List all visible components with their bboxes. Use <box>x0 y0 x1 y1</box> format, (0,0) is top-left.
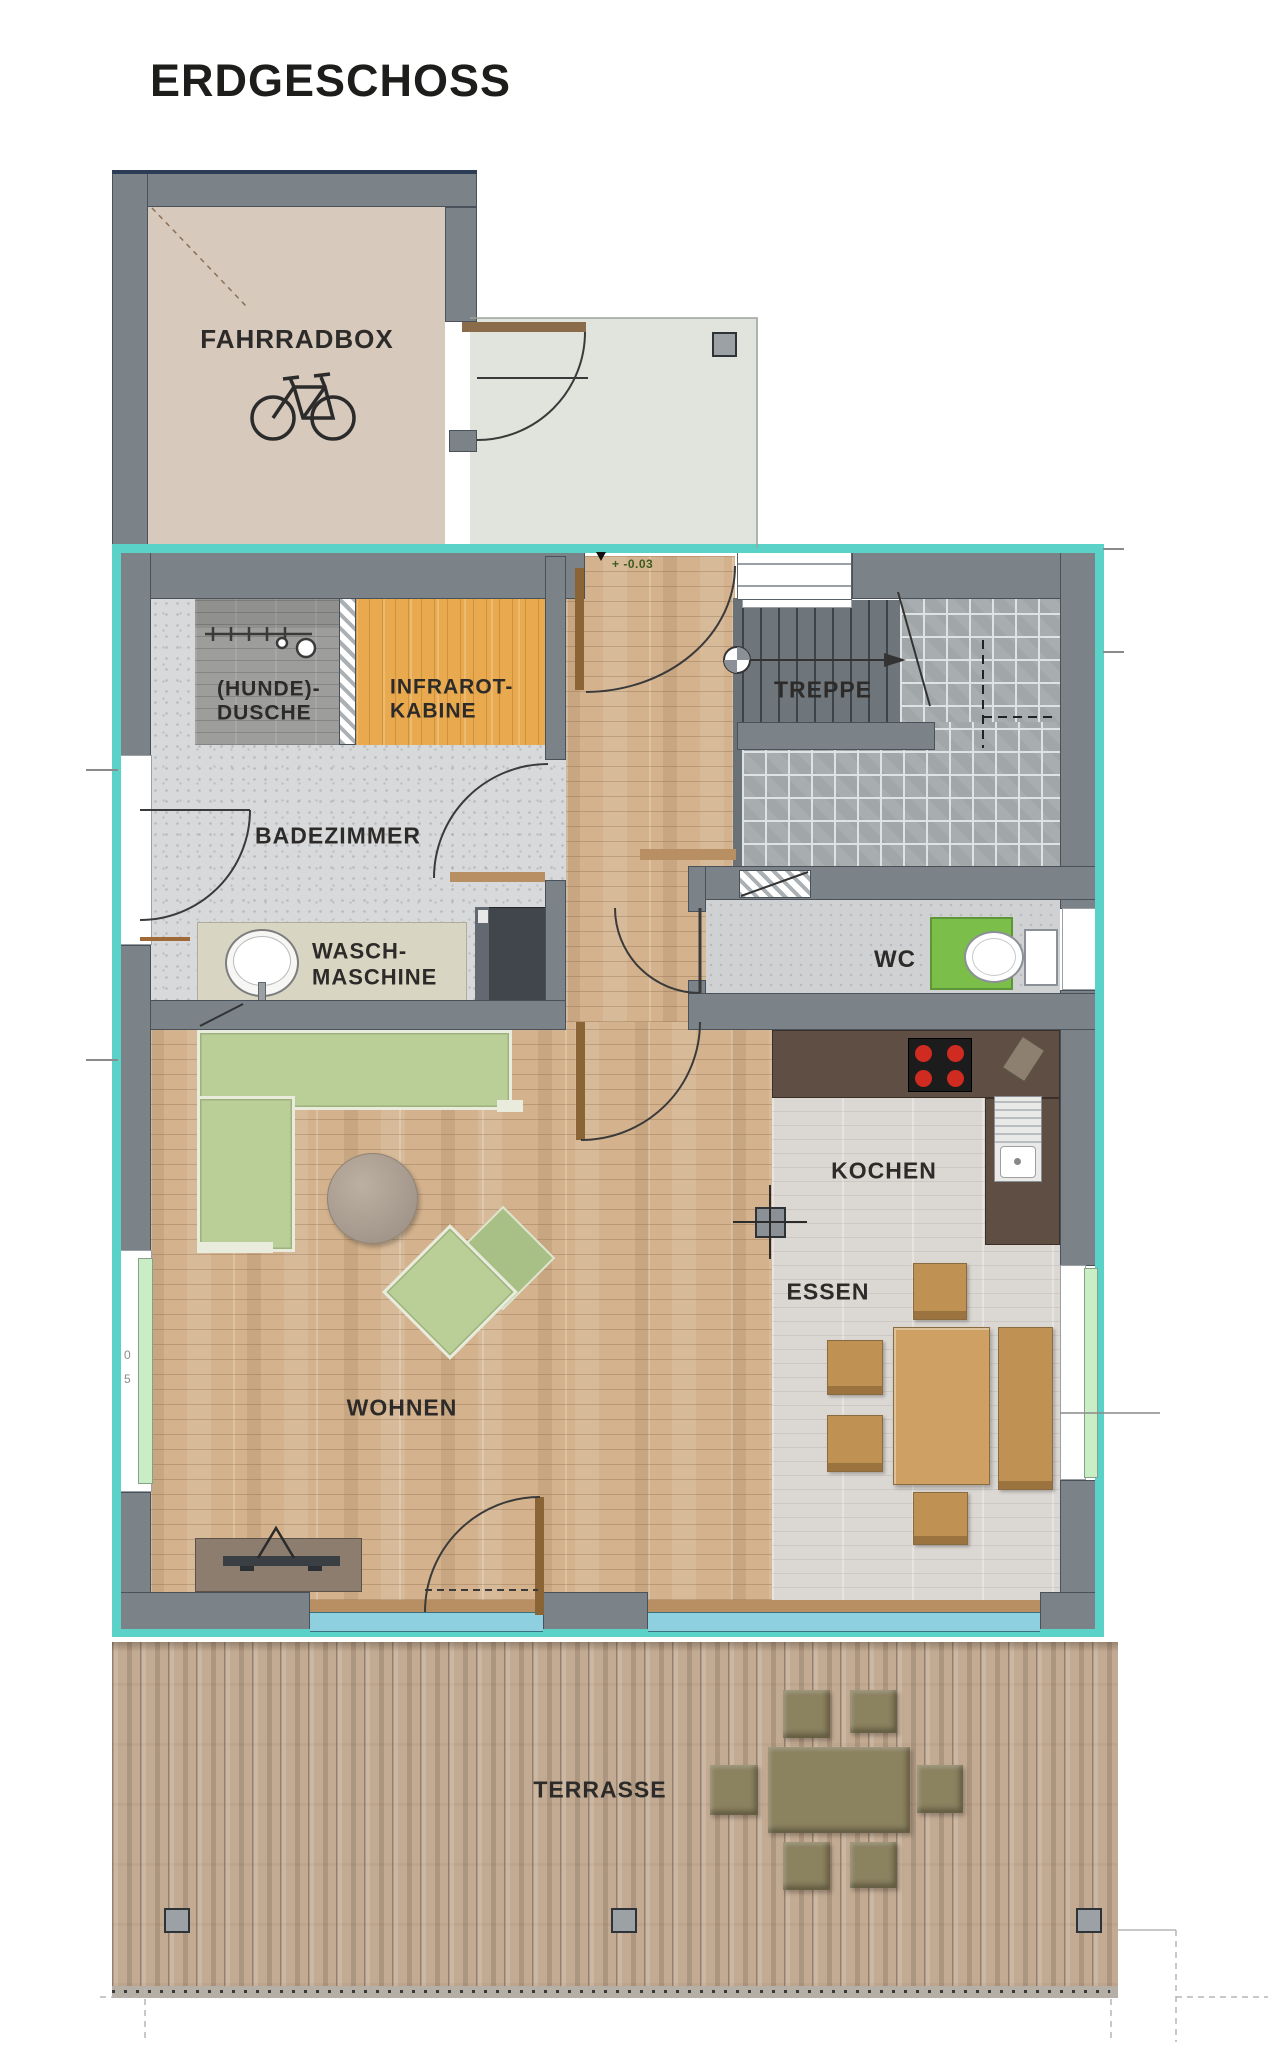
column-cross <box>733 1185 807 1259</box>
fahrradbox-diagonal <box>152 208 246 306</box>
room-label-kochen: KOCHEN <box>831 1158 937 1185</box>
corridor-wohnen-door-arc <box>581 1022 700 1140</box>
floor-level-annotation: + -0.03 <box>612 557 653 571</box>
bad-exterior-door-arc <box>140 810 250 920</box>
porch-door-arc <box>477 332 585 440</box>
survey-lines <box>100 1930 1268 2042</box>
dimension-ticks <box>86 549 1124 1060</box>
wc-door-arc <box>615 908 700 993</box>
shower-rail-icon <box>205 627 315 657</box>
room-label-badezimmer: BADEZIMMER <box>255 823 421 850</box>
hall-dashed-lines <box>983 640 1053 748</box>
room-label-essen: ESSEN <box>787 1279 870 1306</box>
room-label-dusche: (HUNDE)-DUSCHE <box>217 678 321 727</box>
niche-diagonal <box>741 872 808 896</box>
plan-linework <box>0 0 1268 2069</box>
label-waschmaschine: WASCH-MASCHINE <box>312 938 437 989</box>
room-label-terrasse: TERRASSE <box>533 1777 666 1804</box>
page-title: ERDGESCHOSS <box>150 55 511 107</box>
room-label-treppe: TREPPE <box>774 677 872 704</box>
floorplan-canvas: ERDGESCHOSS FAHRRADBOX <box>0 0 1268 2069</box>
bicycle-icon <box>252 374 354 439</box>
dim-mark-top: 0 <box>124 1348 131 1362</box>
room-label-wohnen: WOHNEN <box>347 1395 458 1422</box>
tv-antenna-icon <box>258 1528 294 1558</box>
front-door-arc <box>586 566 735 692</box>
lintel-diagonal <box>200 1004 243 1026</box>
terrace-door-arc <box>425 1497 540 1612</box>
room-label-fahrradbox: FAHRRADBOX <box>200 324 393 354</box>
dim-mark-bottom: 5 <box>124 1372 131 1386</box>
bad-door-arc <box>434 764 548 878</box>
room-label-wc: WC <box>874 946 916 974</box>
level-marker-icon <box>596 552 606 561</box>
room-label-infrarot: INFRAROT-KABINE <box>390 676 513 725</box>
